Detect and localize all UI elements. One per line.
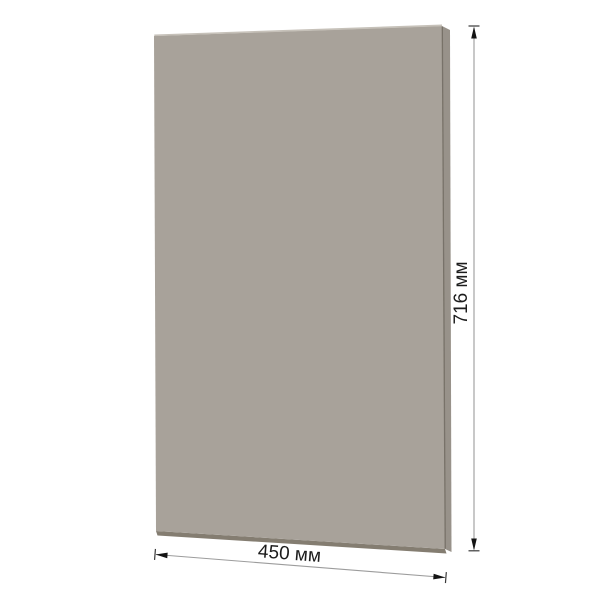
width-dimension-arrow-right xyxy=(433,574,445,581)
diagram-canvas: 716 мм 450 мм xyxy=(0,0,600,600)
height-dimension-label: 716 мм xyxy=(451,261,472,324)
height-dimension: 716 мм xyxy=(451,26,480,551)
width-dimension-arrow-left xyxy=(155,552,167,559)
panel-front-face xyxy=(154,26,445,549)
width-dimension-right-tick xyxy=(445,572,446,583)
width-dimension-left-tick xyxy=(155,549,156,560)
dimension-diagram: 716 мм 450 мм xyxy=(0,0,600,600)
height-dimension-arrow-up xyxy=(471,27,477,39)
height-dimension-arrow-down xyxy=(471,539,477,551)
panel xyxy=(154,25,452,553)
